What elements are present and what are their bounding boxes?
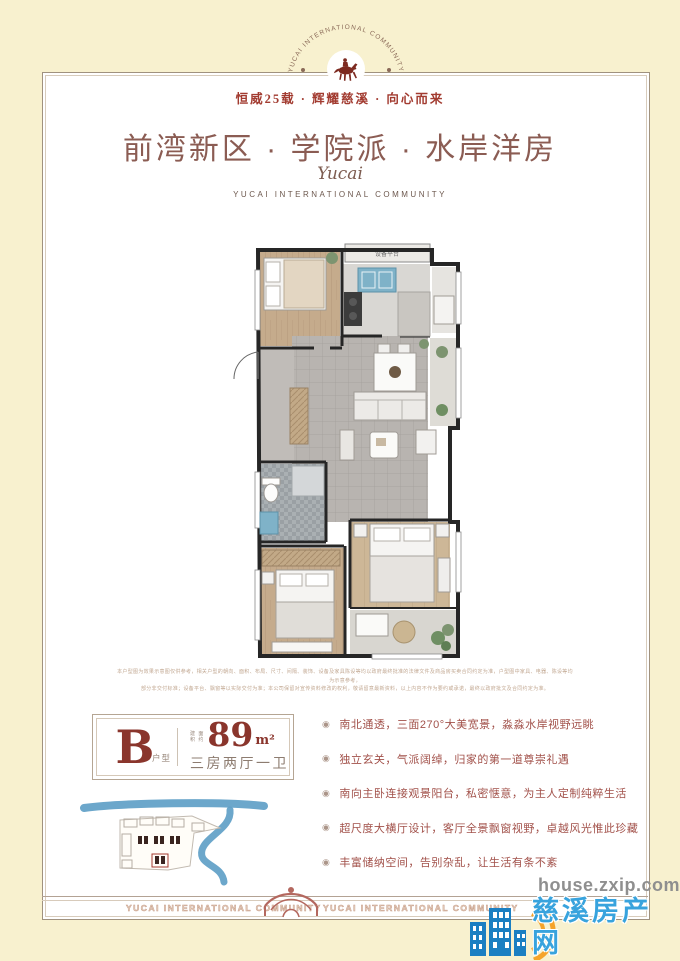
- horse-emblem: [327, 50, 365, 88]
- list-item: ◉ 独立玄关，气派阔绰，归家的第一道尊崇礼遇: [322, 751, 622, 767]
- plant-icon: [326, 252, 338, 264]
- right-dot: [387, 68, 391, 72]
- bullet-ornament-icon: ◉: [322, 789, 330, 798]
- river-bend-stroke: [202, 810, 231, 882]
- floor-plan-image: 设备平台: [232, 240, 462, 666]
- left-dot: [301, 68, 305, 72]
- logo-script: Yucai: [0, 164, 680, 184]
- watermark-url: house.zxip.com: [538, 875, 680, 895]
- unit-letter-wrap: B 户型: [93, 724, 177, 770]
- bullet-ornament-icon: ◉: [322, 754, 330, 763]
- unit-letter: B: [116, 720, 155, 774]
- logo-subtitle: YUCAI INTERNATIONAL COMMUNITY: [0, 190, 680, 199]
- plant-icon: [419, 339, 429, 349]
- foyer-cabinet: [290, 388, 308, 444]
- site-watermark: house.zxip.com 慈溪房产网: [466, 898, 680, 960]
- bullet-ornament-icon: ◉: [322, 720, 330, 729]
- disclaimer-line1: 本户型图为效果示意图仅供参考，相关户型的朝向、面积、布局、尺寸、间隔、装饰、设备…: [115, 668, 575, 685]
- nightstand: [354, 524, 367, 537]
- area-prefix: 建 面 积 约: [190, 731, 204, 743]
- entry-door-arc: [234, 352, 258, 379]
- river-stroke: [84, 803, 264, 808]
- disclaimer: 本户型图为效果示意图仅供参考，相关户型的朝向、面积、布局、尺寸、间隔、装饰、设备…: [115, 668, 575, 694]
- feature-text: 南向主卧连接观景阳台，私密惬意，为主人定制纯粹生活: [339, 785, 627, 801]
- feature-list: ◉ 南北通透，三面270°大美宽景，淼淼水岸视野远眺 ◉ 独立玄关，气派阔绰，归…: [322, 716, 622, 889]
- bench: [272, 642, 332, 652]
- feature-text: 丰富储纳空间，告别杂乱，让生活有条不紊: [339, 854, 558, 870]
- list-item: ◉ 丰富储纳空间，告别杂乱，让生活有条不紊: [322, 854, 622, 870]
- sofa: [354, 392, 426, 420]
- brand-slogan: 恒威25载 · 辉耀慈溪 · 向心而来: [0, 88, 680, 107]
- unit-info-box: B 户型 建 面 积 约 89 m² 三房两厅一卫: [92, 714, 294, 780]
- stove: [344, 292, 362, 326]
- bed-north: [264, 258, 326, 310]
- unit-layout: 三房两厅一卫: [190, 753, 289, 773]
- wardrobe: [262, 550, 340, 566]
- unit-letter-suffix: 户型: [152, 752, 171, 764]
- laundry-counter: [356, 614, 388, 636]
- feature-text: 超尺度大横厅设计，客厅全景飘窗视野，卓越风光惟此珍藏: [339, 820, 638, 836]
- list-item: ◉ 超尺度大横厅设计，客厅全景飘窗视野，卓越风光惟此珍藏: [322, 820, 622, 836]
- plant-icon: [436, 404, 448, 416]
- poster-page: YUCAI INTERNATIONAL COMMUNITY 恒威25载 · 辉耀…: [0, 0, 680, 961]
- balcony-desk: [434, 296, 454, 324]
- nightstand: [436, 524, 449, 537]
- tv-stand: [340, 430, 354, 460]
- list-item: ◉ 南北通透，三面270°大美宽景，淼淼水岸视野远眺: [322, 716, 622, 732]
- round-chair: [393, 621, 415, 643]
- bathroom-sink: [260, 512, 278, 534]
- watermark-name: 慈溪房产网: [532, 895, 680, 959]
- page-title: 前湾新区 · 学院派 · 水岸洋房: [0, 124, 680, 168]
- lounge-chair: [416, 430, 436, 454]
- bullet-ornament-icon: ◉: [322, 823, 330, 832]
- location-map-sketch: [72, 786, 272, 894]
- bullet-ornament-icon: ◉: [322, 858, 330, 867]
- bed-sw: [276, 570, 334, 638]
- coffee-table: [370, 432, 398, 458]
- arch-bridge-icon: [263, 884, 319, 918]
- disclaimer-line2: 部分非交付标准；设备平台、飘窗等以实际交付为准；本公司保留对宣传资料修改的权利，…: [115, 685, 575, 694]
- nightstand: [262, 572, 274, 584]
- bed-master: [370, 524, 434, 602]
- feature-text: 独立玄关，气派阔绰，归家的第一道尊崇礼遇: [339, 751, 569, 767]
- list-item: ◉ 南向主卧连接观景阳台，私密惬意，为主人定制纯粹生活: [322, 785, 622, 801]
- feature-text: 南北通透，三面270°大美宽景，淼淼水岸视野远眺: [339, 716, 594, 732]
- area-unit: m²: [255, 733, 274, 748]
- plant-icon: [436, 346, 448, 358]
- horse-rider-icon: [331, 54, 361, 84]
- area-value: 89: [207, 721, 253, 749]
- shower-area: [292, 466, 324, 496]
- dresser: [438, 558, 450, 592]
